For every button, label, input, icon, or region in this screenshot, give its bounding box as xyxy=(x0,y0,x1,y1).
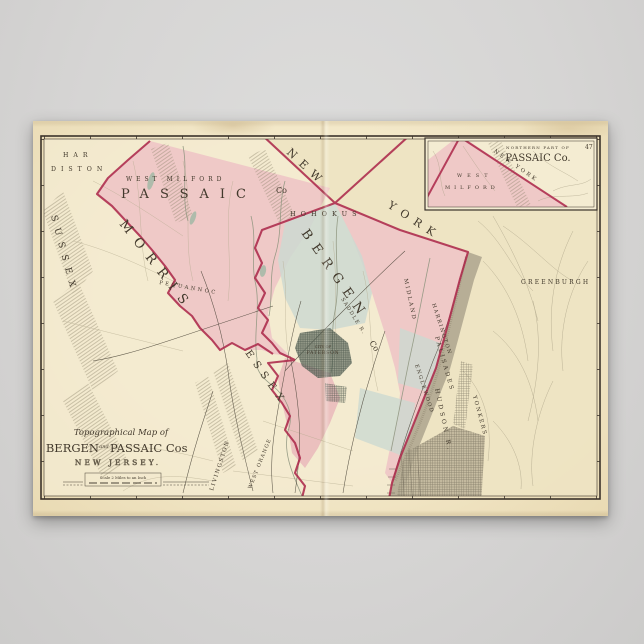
cartouche-county2: PASSAIC Cos xyxy=(110,441,188,455)
map-poster: HAR DISTON SUSSEX WEST MILFORD PASSAIC C… xyxy=(33,121,608,516)
scale-text: Scale 2 Miles to an Inch xyxy=(100,475,147,480)
inset-map: WEST MILFORD NEW YORK NORTHERN PART OF P… xyxy=(424,135,597,210)
cartouche-conjunction: and xyxy=(99,444,108,450)
cartouche-prefix: Topographical Map of xyxy=(74,428,170,438)
label-passaic-county: PASSAIC xyxy=(121,187,257,202)
inset-page-number: 47 xyxy=(585,144,593,151)
label-greenburgh: GREENBURGH xyxy=(521,279,590,286)
label-hohokus: HOHOKUS xyxy=(290,210,362,218)
cartouche-county1: BERGEN xyxy=(46,441,99,455)
map-graphic: HAR DISTON SUSSEX WEST MILFORD PASSAIC C… xyxy=(33,121,608,516)
label-paterson: PATERSON xyxy=(307,350,340,356)
inset-heading-large: PASSAIC Co. xyxy=(505,153,570,164)
cartouche-state: NEW JERSEY. xyxy=(75,458,161,467)
label-passaic-suffix: Co xyxy=(276,186,287,195)
inset-label-west: WEST xyxy=(457,173,493,179)
label-hardiston-1: HAR xyxy=(63,152,93,159)
product-backdrop: HAR DISTON SUSSEX WEST MILFORD PASSAIC C… xyxy=(0,0,644,644)
label-hardiston-2: DISTON xyxy=(51,166,107,173)
label-west-milford: WEST MILFORD xyxy=(126,176,225,183)
inset-label-milford: MILFORD xyxy=(445,185,499,191)
inset-heading-small: NORTHERN PART OF xyxy=(506,145,570,150)
label-city-of: CITY OF xyxy=(315,344,332,349)
